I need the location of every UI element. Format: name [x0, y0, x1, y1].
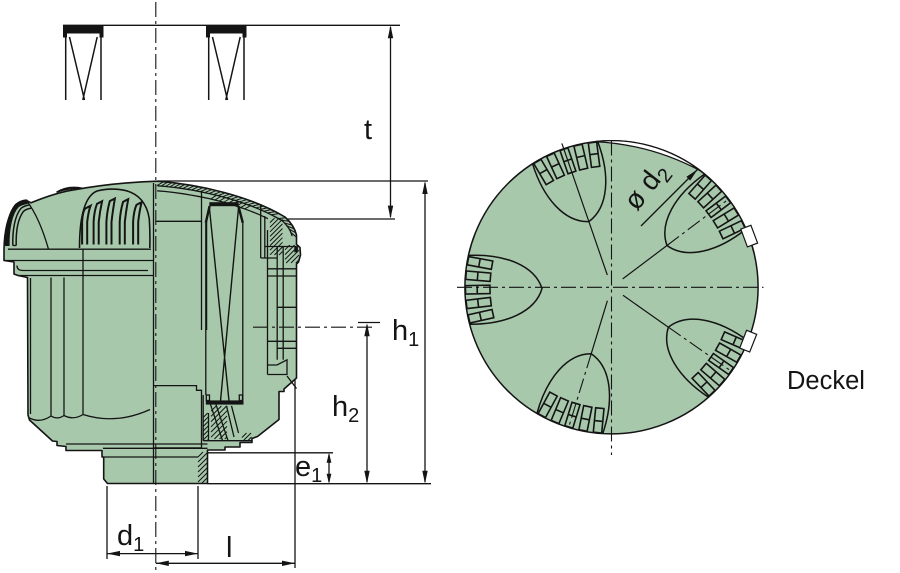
- svg-text:h1: h1: [392, 315, 419, 351]
- svg-text:d1: d1: [117, 520, 144, 556]
- svg-text:e1: e1: [295, 451, 322, 487]
- svg-text:t: t: [364, 114, 372, 146]
- svg-text:l: l: [226, 532, 232, 564]
- svg-text:Deckel: Deckel: [787, 367, 865, 395]
- svg-text:h2: h2: [332, 391, 359, 427]
